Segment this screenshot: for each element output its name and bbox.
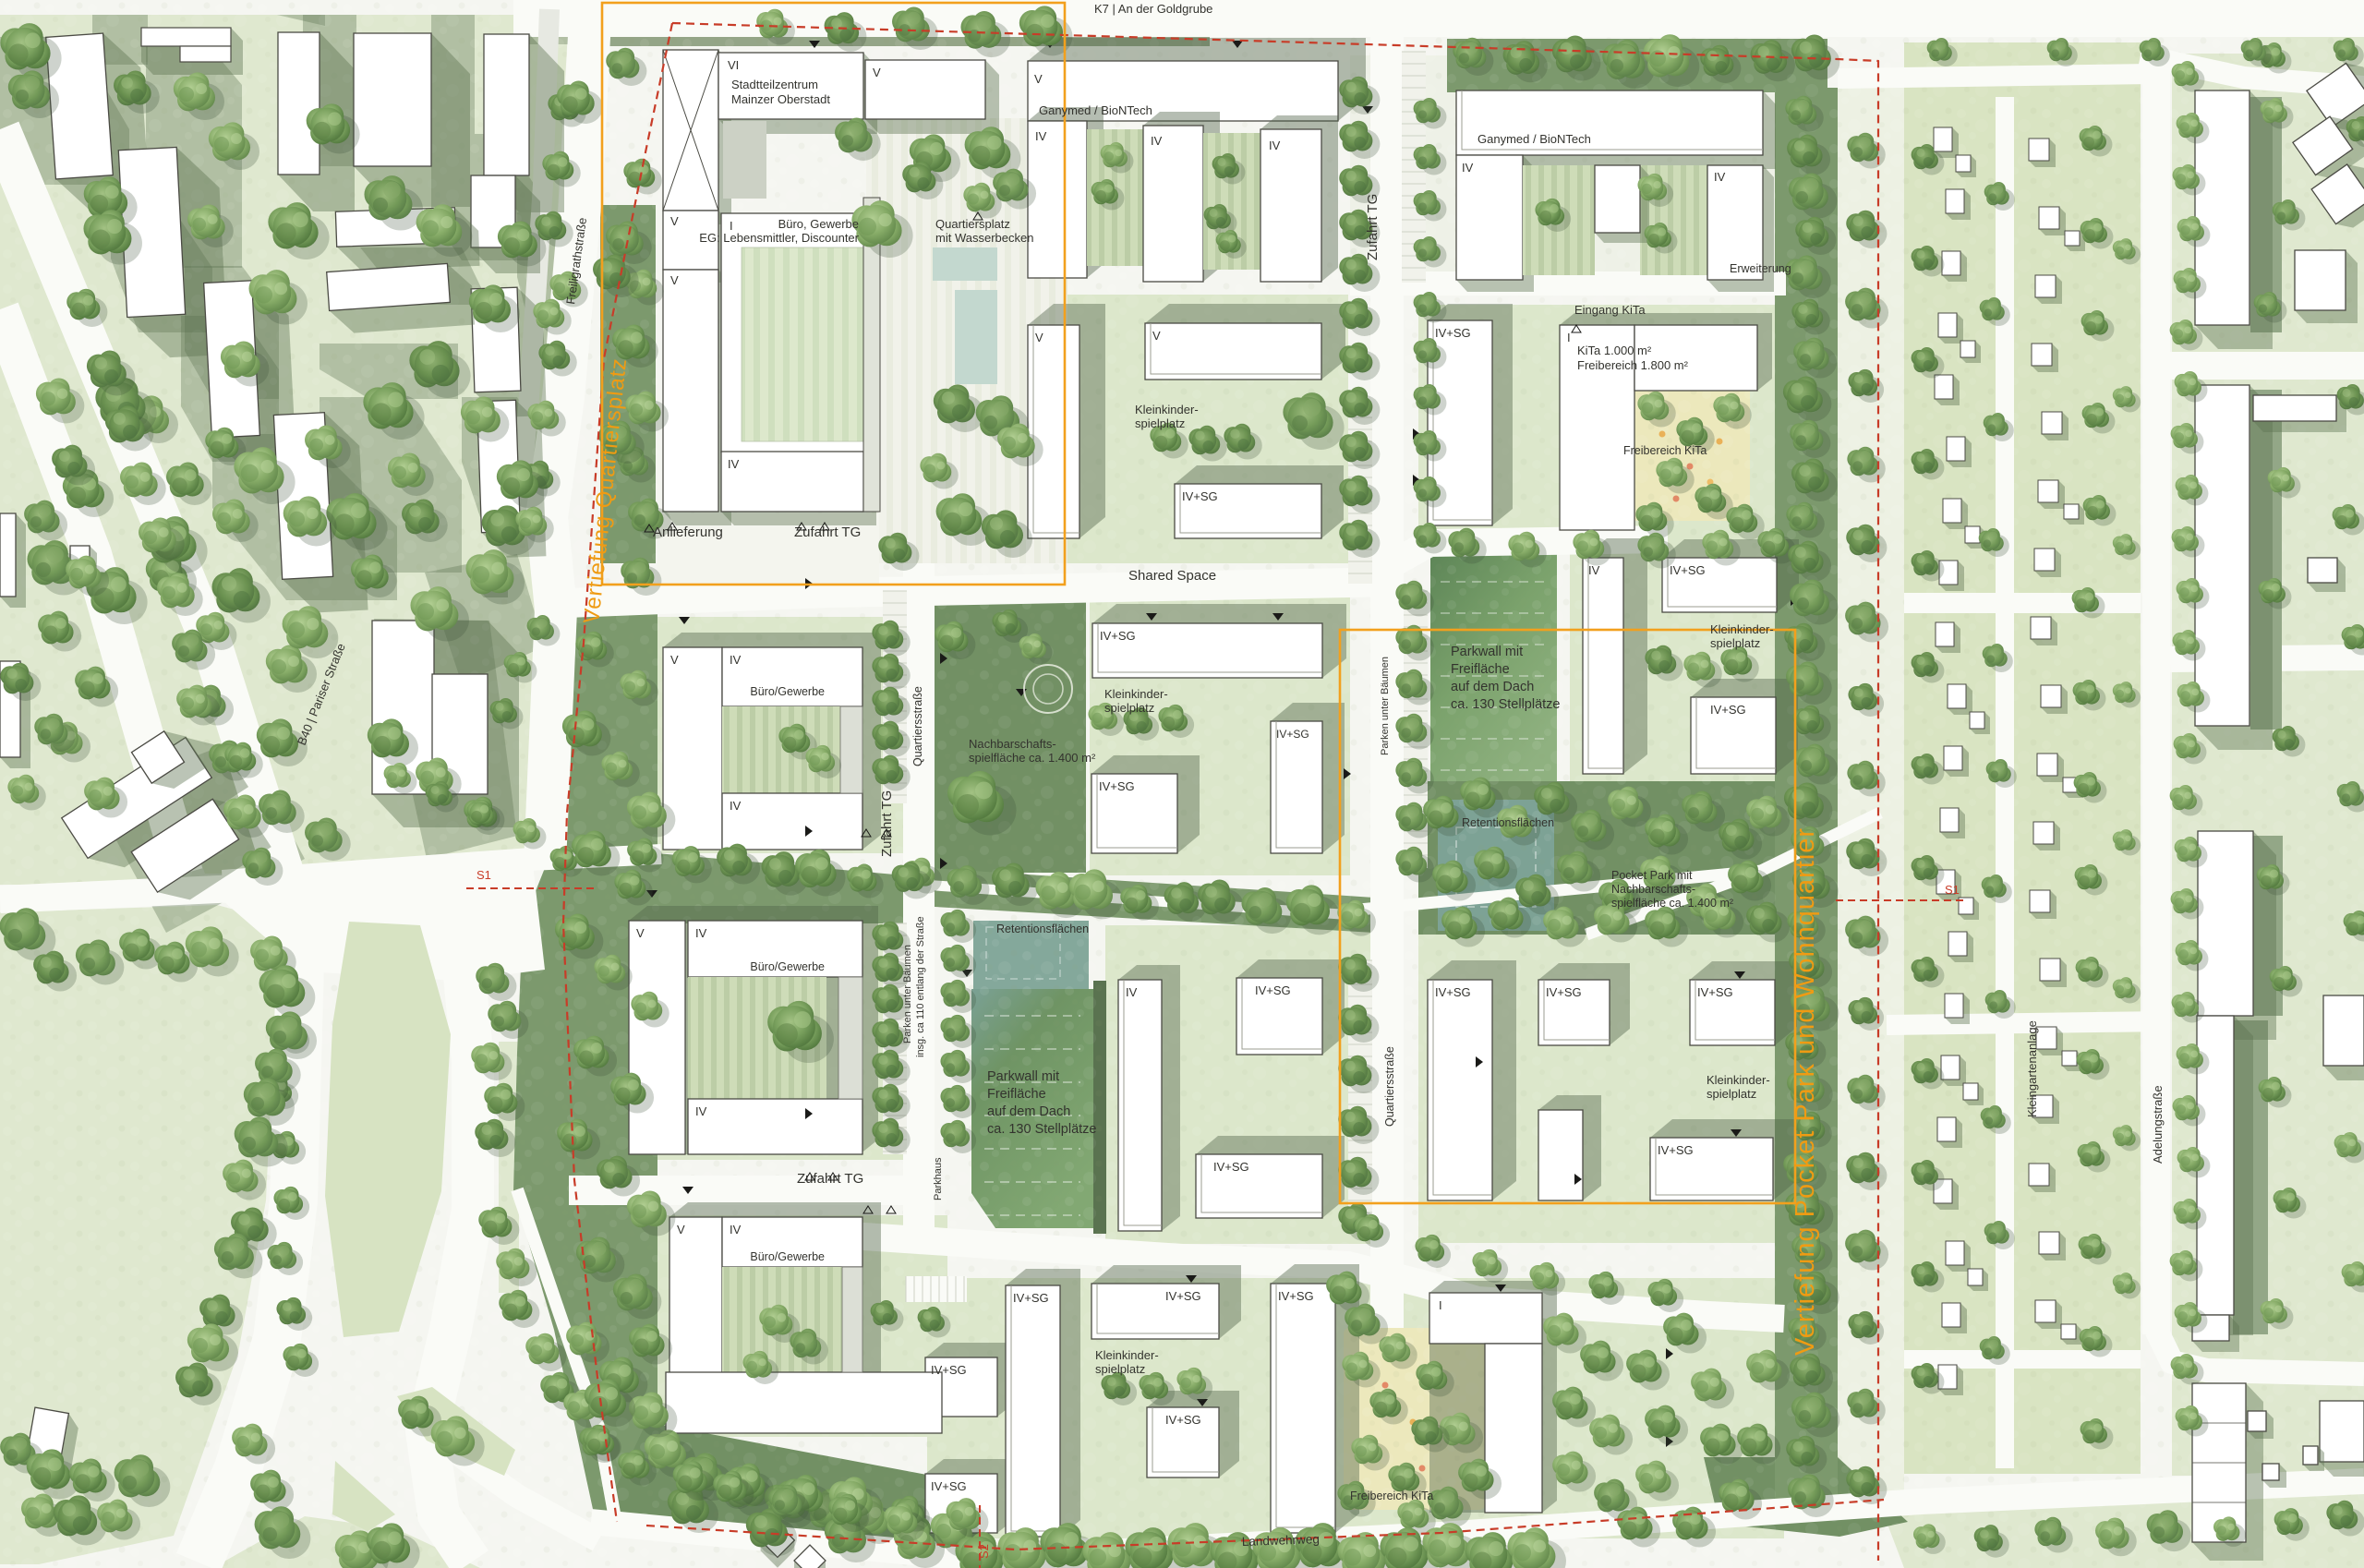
svg-text:IV: IV bbox=[1035, 129, 1047, 143]
svg-text:IV+SG: IV+SG bbox=[1670, 563, 1706, 577]
svg-text:spielplatz: spielplatz bbox=[1135, 416, 1185, 430]
svg-text:Quartiersstraße: Quartiersstraße bbox=[1383, 1046, 1396, 1127]
svg-text:S2: S2 bbox=[977, 1544, 991, 1559]
svg-text:Nachbarschafts-: Nachbarschafts- bbox=[969, 737, 1056, 751]
svg-text:K7 | An der Goldgrube: K7 | An der Goldgrube bbox=[1094, 2, 1212, 16]
svg-text:IV: IV bbox=[1588, 563, 1600, 577]
svg-text:mit Wasserbecken: mit Wasserbecken bbox=[935, 231, 1033, 245]
svg-text:Ganymed / BioNTech: Ganymed / BioNTech bbox=[1477, 132, 1591, 146]
svg-text:Quartiersstraße: Quartiersstraße bbox=[911, 686, 924, 766]
svg-text:V: V bbox=[1034, 72, 1043, 86]
svg-text:Parkwall mit: Parkwall mit bbox=[987, 1069, 1059, 1084]
svg-text:IV: IV bbox=[1269, 139, 1281, 152]
svg-text:Retentionsflächen: Retentionsflächen bbox=[996, 923, 1089, 935]
svg-text:IV+SG: IV+SG bbox=[1278, 1289, 1314, 1303]
svg-text:I: I bbox=[730, 219, 733, 233]
svg-text:V: V bbox=[670, 653, 679, 667]
svg-text:spielfläche ca. 1.400 m²: spielfläche ca. 1.400 m² bbox=[969, 751, 1096, 765]
svg-text:spielplatz: spielplatz bbox=[1710, 636, 1760, 650]
svg-text:IV+SG: IV+SG bbox=[1435, 326, 1471, 340]
svg-text:Anlieferung: Anlieferung bbox=[653, 525, 723, 540]
svg-text:IV+SG: IV+SG bbox=[931, 1479, 967, 1493]
svg-text:spielfläche ca. 1.400 m²: spielfläche ca. 1.400 m² bbox=[1611, 897, 1733, 910]
svg-text:KiTa 1.000 m²: KiTa 1.000 m² bbox=[1577, 344, 1652, 357]
svg-text:Kleinkinder-: Kleinkinder- bbox=[1135, 403, 1199, 416]
svg-text:V: V bbox=[636, 926, 645, 940]
svg-text:VI: VI bbox=[728, 58, 739, 72]
svg-text:Mainzer Oberstadt: Mainzer Oberstadt bbox=[731, 92, 830, 106]
svg-text:Shared Space: Shared Space bbox=[1128, 568, 1216, 584]
svg-text:IV: IV bbox=[730, 653, 742, 667]
svg-text:spielplatz: spielplatz bbox=[1707, 1087, 1756, 1101]
svg-text:V: V bbox=[677, 1223, 685, 1236]
svg-text:IV+SG: IV+SG bbox=[1099, 779, 1135, 793]
svg-text:IV: IV bbox=[1714, 170, 1726, 184]
svg-text:IV+SG: IV+SG bbox=[1546, 985, 1582, 999]
svg-text:auf dem Dach: auf dem Dach bbox=[987, 1104, 1070, 1119]
svg-text:IV: IV bbox=[1126, 985, 1138, 999]
svg-text:IV: IV bbox=[1151, 134, 1163, 148]
svg-text:Adelungstraße: Adelungstraße bbox=[2151, 1085, 2165, 1164]
svg-text:Nachbarschafts-: Nachbarschafts- bbox=[1611, 883, 1695, 896]
svg-text:Zufahrt TG: Zufahrt TG bbox=[1365, 194, 1381, 260]
svg-text:IV+SG: IV+SG bbox=[1435, 985, 1471, 999]
svg-text:Parken unter Bäumen: Parken unter Bäumen bbox=[902, 945, 913, 1043]
svg-text:V: V bbox=[1152, 329, 1161, 343]
svg-text:Parkwall mit: Parkwall mit bbox=[1451, 645, 1523, 659]
svg-text:V: V bbox=[1035, 331, 1043, 344]
svg-text:V: V bbox=[670, 214, 679, 228]
svg-text:IV+SG: IV+SG bbox=[1100, 629, 1136, 643]
svg-text:IV+SG: IV+SG bbox=[1165, 1289, 1201, 1303]
svg-text:ca. 130 Stellplätze: ca. 130 Stellplätze bbox=[1451, 697, 1561, 712]
svg-text:V: V bbox=[670, 273, 679, 287]
svg-text:Erweiterung: Erweiterung bbox=[1730, 262, 1791, 275]
svg-text:IV+SG: IV+SG bbox=[1658, 1143, 1694, 1157]
svg-text:Freifläche: Freifläche bbox=[1451, 662, 1510, 677]
svg-text:Büro, Gewerbe: Büro, Gewerbe bbox=[778, 217, 859, 231]
svg-text:Freibereich 1.800 m²: Freibereich 1.800 m² bbox=[1577, 358, 1689, 372]
svg-text:S1: S1 bbox=[1945, 883, 1960, 897]
svg-text:IV+SG: IV+SG bbox=[1165, 1413, 1201, 1427]
svg-text:Büro/Gewerbe: Büro/Gewerbe bbox=[750, 1250, 825, 1263]
svg-text:Freifläche: Freifläche bbox=[987, 1087, 1046, 1102]
svg-text:IV+SG: IV+SG bbox=[1276, 728, 1309, 741]
svg-text:Kleinkinder-: Kleinkinder- bbox=[1710, 622, 1774, 636]
svg-text:I: I bbox=[1439, 1298, 1442, 1312]
svg-text:Kleingartenanlage: Kleingartenanlage bbox=[2025, 1020, 2039, 1117]
svg-text:S1: S1 bbox=[476, 868, 491, 882]
svg-text:Büro/Gewerbe: Büro/Gewerbe bbox=[750, 685, 825, 698]
svg-text:Kleinkinder-: Kleinkinder- bbox=[1707, 1073, 1770, 1087]
svg-text:Pocket Park mit: Pocket Park mit bbox=[1611, 869, 1693, 882]
svg-text:IV: IV bbox=[728, 457, 740, 471]
svg-text:IV+SG: IV+SG bbox=[1710, 703, 1746, 717]
svg-text:IV: IV bbox=[1462, 161, 1474, 175]
svg-text:Parken unter Bäumen: Parken unter Bäumen bbox=[1380, 657, 1391, 755]
svg-text:IV: IV bbox=[730, 799, 742, 813]
svg-text:IV: IV bbox=[695, 1104, 707, 1118]
svg-text:Freibereich KiTa: Freibereich KiTa bbox=[1350, 1490, 1433, 1502]
svg-text:Kleinkinder-: Kleinkinder- bbox=[1095, 1348, 1159, 1362]
svg-text:spielplatz: spielplatz bbox=[1104, 701, 1154, 715]
svg-text:ca. 130 Stellplätze: ca. 130 Stellplätze bbox=[987, 1122, 1097, 1137]
svg-text:EG: Lebensmittler, Discounter: EG: Lebensmittler, Discounter bbox=[699, 231, 859, 245]
svg-text:Freibereich KiTa: Freibereich KiTa bbox=[1623, 444, 1707, 457]
svg-text:Kleinkinder-: Kleinkinder- bbox=[1104, 687, 1168, 701]
svg-text:auf dem Dach: auf dem Dach bbox=[1451, 680, 1534, 694]
svg-text:IV: IV bbox=[695, 926, 707, 940]
svg-text:IV+SG: IV+SG bbox=[1013, 1291, 1049, 1305]
svg-text:I: I bbox=[1567, 331, 1571, 344]
svg-text:IV: IV bbox=[730, 1223, 742, 1236]
svg-text:IV+SG: IV+SG bbox=[931, 1363, 967, 1377]
svg-text:Vertiefung Pocket Park und Woh: Vertiefung Pocket Park und Wohnquartier bbox=[1791, 827, 1820, 1356]
svg-text:Büro/Gewerbe: Büro/Gewerbe bbox=[750, 960, 825, 973]
svg-text:IV+SG: IV+SG bbox=[1255, 983, 1291, 997]
svg-text:spielplatz: spielplatz bbox=[1095, 1362, 1145, 1376]
svg-text:IV+SG: IV+SG bbox=[1182, 489, 1218, 503]
svg-text:Parkhaus: Parkhaus bbox=[933, 1157, 944, 1200]
svg-text:Ganymed / BioNTech: Ganymed / BioNTech bbox=[1039, 103, 1152, 117]
svg-text:Eingang KiTa: Eingang KiTa bbox=[1574, 303, 1646, 317]
svg-text:IV+SG: IV+SG bbox=[1213, 1160, 1249, 1174]
svg-text:insg. ca 110 entlang der Straß: insg. ca 110 entlang der Straße bbox=[915, 916, 926, 1057]
svg-text:IV+SG: IV+SG bbox=[1697, 985, 1733, 999]
svg-text:V: V bbox=[873, 66, 881, 79]
svg-text:Landwehrweg: Landwehrweg bbox=[1242, 1532, 1321, 1549]
svg-text:Stadtteilzentrum: Stadtteilzentrum bbox=[731, 78, 818, 91]
svg-text:Retentionsflächen: Retentionsflächen bbox=[1462, 816, 1554, 829]
svg-text:Quartiersplatz: Quartiersplatz bbox=[935, 217, 1010, 231]
svg-text:Zufahrt TG: Zufahrt TG bbox=[879, 790, 895, 857]
svg-text:Zufahrt TG: Zufahrt TG bbox=[797, 1171, 863, 1187]
